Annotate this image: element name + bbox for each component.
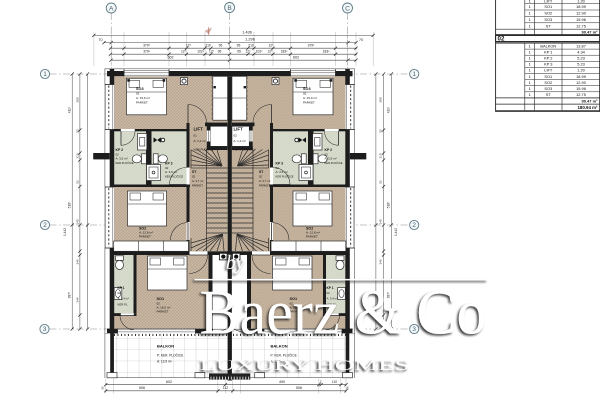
svg-text:ST: ST [546,23,552,28]
svg-text:210: 210 [75,153,79,158]
svg-text:12⁵: 12⁵ [181,50,187,54]
svg-text:411⁵: 411⁵ [68,106,72,113]
svg-text:B: B [227,5,232,12]
svg-text:15.96: 15.96 [576,86,586,91]
svg-text:1: 1 [529,92,531,97]
svg-text:70: 70 [99,38,103,42]
svg-text:12.90: 12.90 [576,11,587,16]
svg-text:280: 280 [379,97,383,102]
svg-text:1: 1 [529,43,531,48]
svg-text:SO3: SO3 [544,17,552,22]
svg-text:52: 52 [75,129,79,133]
svg-text:379⁵: 379⁵ [308,44,316,48]
svg-text:15.96: 15.96 [576,17,586,22]
svg-text:1.442: 1.442 [394,228,398,236]
svg-text:12.90: 12.90 [576,80,587,85]
svg-text:A: 3,4 m²: A: 3,4 m² [118,297,129,301]
svg-text:95: 95 [237,50,241,54]
svg-text:518⁵: 518⁵ [386,201,390,208]
svg-text:A: 1,2 m²: A: 1,2 m² [194,139,206,143]
svg-text:A: 3,5 m²: A: 3,5 m² [325,157,337,161]
svg-text:12.75: 12.75 [576,23,586,28]
svg-text:1: 1 [43,71,47,78]
svg-text:5.23: 5.23 [577,56,585,61]
svg-text:02: 02 [259,175,263,179]
svg-text:36: 36 [101,386,105,390]
svg-text:379³: 379³ [143,50,151,54]
svg-text:A: 1,2 m²: A: 1,2 m² [234,139,246,143]
svg-text:1: 1 [529,23,531,28]
svg-text:506: 506 [296,386,302,390]
svg-text:5.23: 5.23 [577,62,585,67]
svg-text:52: 52 [379,129,383,133]
svg-text:3: 3 [43,326,47,333]
svg-text:1: 1 [412,71,416,78]
svg-text:379⁵: 379⁵ [143,44,151,48]
svg-text:1: 1 [529,74,531,79]
svg-text:1: 1 [529,68,531,73]
svg-text:A: 15,9 m²: A: 15,9 m² [303,96,317,100]
svg-text:KP 1: KP 1 [118,286,125,290]
svg-text:PARKET: PARKET [259,184,270,188]
svg-text:01: 01 [194,134,198,138]
svg-text:PARKET: PARKET [136,101,148,105]
svg-text:1: 1 [529,17,531,22]
svg-text:PARKET: PARKET [192,184,203,188]
svg-text:18.99: 18.99 [576,74,586,79]
svg-text:602: 602 [166,380,172,384]
svg-text:90.47 m²: 90.47 m² [581,29,598,34]
svg-text:02: 02 [118,291,122,295]
svg-text:A: 3,5 m²: A: 3,5 m² [165,170,177,174]
svg-text:280: 280 [75,97,79,102]
svg-text:02: 02 [192,175,196,179]
svg-text:PARKET: PARKET [139,235,151,239]
svg-text:95: 95 [219,44,223,48]
svg-text:1: 1 [529,49,531,54]
svg-text:PARKET: PARKET [306,235,318,239]
svg-text:KP 1: KP 1 [544,49,552,54]
svg-text:12⁵: 12⁵ [186,44,192,48]
svg-text:140: 140 [379,219,383,224]
svg-text:1.296: 1.296 [245,37,255,42]
svg-text:506: 506 [139,386,145,390]
svg-text:346: 346 [75,259,79,264]
svg-text:102³: 102³ [197,50,205,54]
svg-text:1.20: 1.20 [577,68,585,73]
svg-text:PARKET: PARKET [157,310,169,314]
svg-text:1: 1 [529,0,531,4]
svg-text:1.442: 1.442 [63,228,67,236]
svg-text:1: 1 [529,56,531,61]
svg-text:KER.PLOČICE: KER.PLOČICE [194,147,214,152]
svg-text:2: 2 [412,222,416,229]
svg-text:4.34: 4.34 [577,49,585,54]
svg-text:102³: 102³ [256,50,264,54]
svg-text:140: 140 [75,219,79,224]
svg-text:112: 112 [223,386,228,390]
svg-text:A: 13,9 m²: A: 13,9 m² [157,360,172,364]
svg-text:SO3: SO3 [544,86,552,91]
svg-text:95: 95 [237,44,241,48]
svg-text:90.47 m²: 90.47 m² [581,99,598,104]
svg-text:95: 95 [218,50,222,54]
svg-text:Baerz & Co: Baerz & Co [200,277,487,348]
svg-text:SO1: SO1 [157,297,165,301]
svg-text:70: 70 [359,38,363,42]
svg-text:1.436: 1.436 [242,29,252,34]
svg-text:411⁵: 411⁵ [386,106,390,113]
svg-text:1: 1 [529,11,531,16]
svg-text:SO3: SO3 [136,87,144,91]
svg-text:490: 490 [279,380,285,384]
svg-text:12⁵: 12⁵ [267,50,273,54]
svg-text:52: 52 [75,180,79,184]
svg-text:602: 602 [168,56,174,60]
svg-text:1.20: 1.20 [577,0,585,4]
svg-text:P: KER. PLOČICE: P: KER. PLOČICE [271,353,297,358]
svg-text:KP 2: KP 2 [544,56,552,61]
svg-text:LUXURY HOMES: LUXURY HOMES [200,358,410,374]
svg-text:A: 3,5 m²: A: 3,5 m² [276,170,288,174]
svg-text:180.94 m²: 180.94 m² [577,105,598,110]
svg-text:KP 2: KP 2 [325,148,333,152]
svg-text:KP 2: KP 2 [116,148,124,152]
svg-text:P: KER. PLOČICE: P: KER. PLOČICE [157,353,183,358]
svg-text:344: 344 [75,297,79,302]
svg-text:183³: 183³ [281,50,289,54]
svg-text:1: 1 [529,80,531,85]
svg-text:A: A [109,5,114,12]
svg-text:SO2: SO2 [544,11,552,16]
svg-text:LIFT: LIFT [544,68,553,73]
svg-text:110: 110 [332,380,337,384]
svg-text:12⁵: 12⁵ [268,44,274,48]
svg-text:KP 3: KP 3 [544,62,552,67]
svg-text:12⁵: 12⁵ [245,50,251,54]
svg-text:36: 36 [346,386,350,390]
svg-text:BALKON: BALKON [157,344,174,349]
svg-text:602: 602 [293,56,299,60]
svg-text:2: 2 [43,222,47,229]
svg-text:02: 02 [136,92,140,96]
svg-text:SO2: SO2 [544,80,552,85]
svg-text:387⁵: 387⁵ [68,291,72,298]
svg-text:13.87: 13.87 [576,43,586,48]
svg-text:A: 3,7 m²: A: 3,7 m² [259,179,270,183]
svg-text:A: 3,5 m²: A: 3,5 m² [116,157,128,161]
svg-text:KP 3: KP 3 [276,162,284,166]
svg-text:LIFT: LIFT [194,127,204,132]
svg-text:C: C [345,5,350,12]
svg-text:SO3: SO3 [303,87,311,91]
svg-text:518⁵: 518⁵ [68,201,72,208]
svg-text:BALKON: BALKON [540,43,556,48]
svg-text:52: 52 [379,180,383,184]
svg-text:KER.PLOČICE: KER.PLOČICE [234,147,254,152]
svg-text:A: 3,7 m²: A: 3,7 m² [192,179,203,183]
svg-text:SO1: SO1 [544,4,552,9]
svg-text:210: 210 [379,153,383,158]
svg-text:1: 1 [529,4,531,9]
svg-text:KER.PL.: KER.PL. [118,303,129,307]
svg-text:1: 1 [529,62,531,67]
svg-text:PARKET: PARKET [303,101,315,105]
svg-text:02: 02 [303,92,307,96]
svg-text:18.99: 18.99 [576,4,586,9]
svg-text:183³: 183³ [323,50,331,54]
svg-text:12.75: 12.75 [576,92,586,97]
svg-text:1: 1 [529,86,531,91]
svg-text:by: by [226,253,245,274]
svg-text:KP 3: KP 3 [165,162,173,166]
svg-text:ST: ST [546,92,552,97]
svg-text:A: 15,9 m²: A: 15,9 m² [136,96,150,100]
svg-text:346: 346 [379,259,383,264]
svg-text:LIFT: LIFT [234,127,244,132]
svg-text:02: 02 [498,36,505,43]
svg-text:SO1: SO1 [544,74,552,79]
svg-text:LIFT: LIFT [544,0,553,4]
svg-text:02: 02 [234,134,238,138]
